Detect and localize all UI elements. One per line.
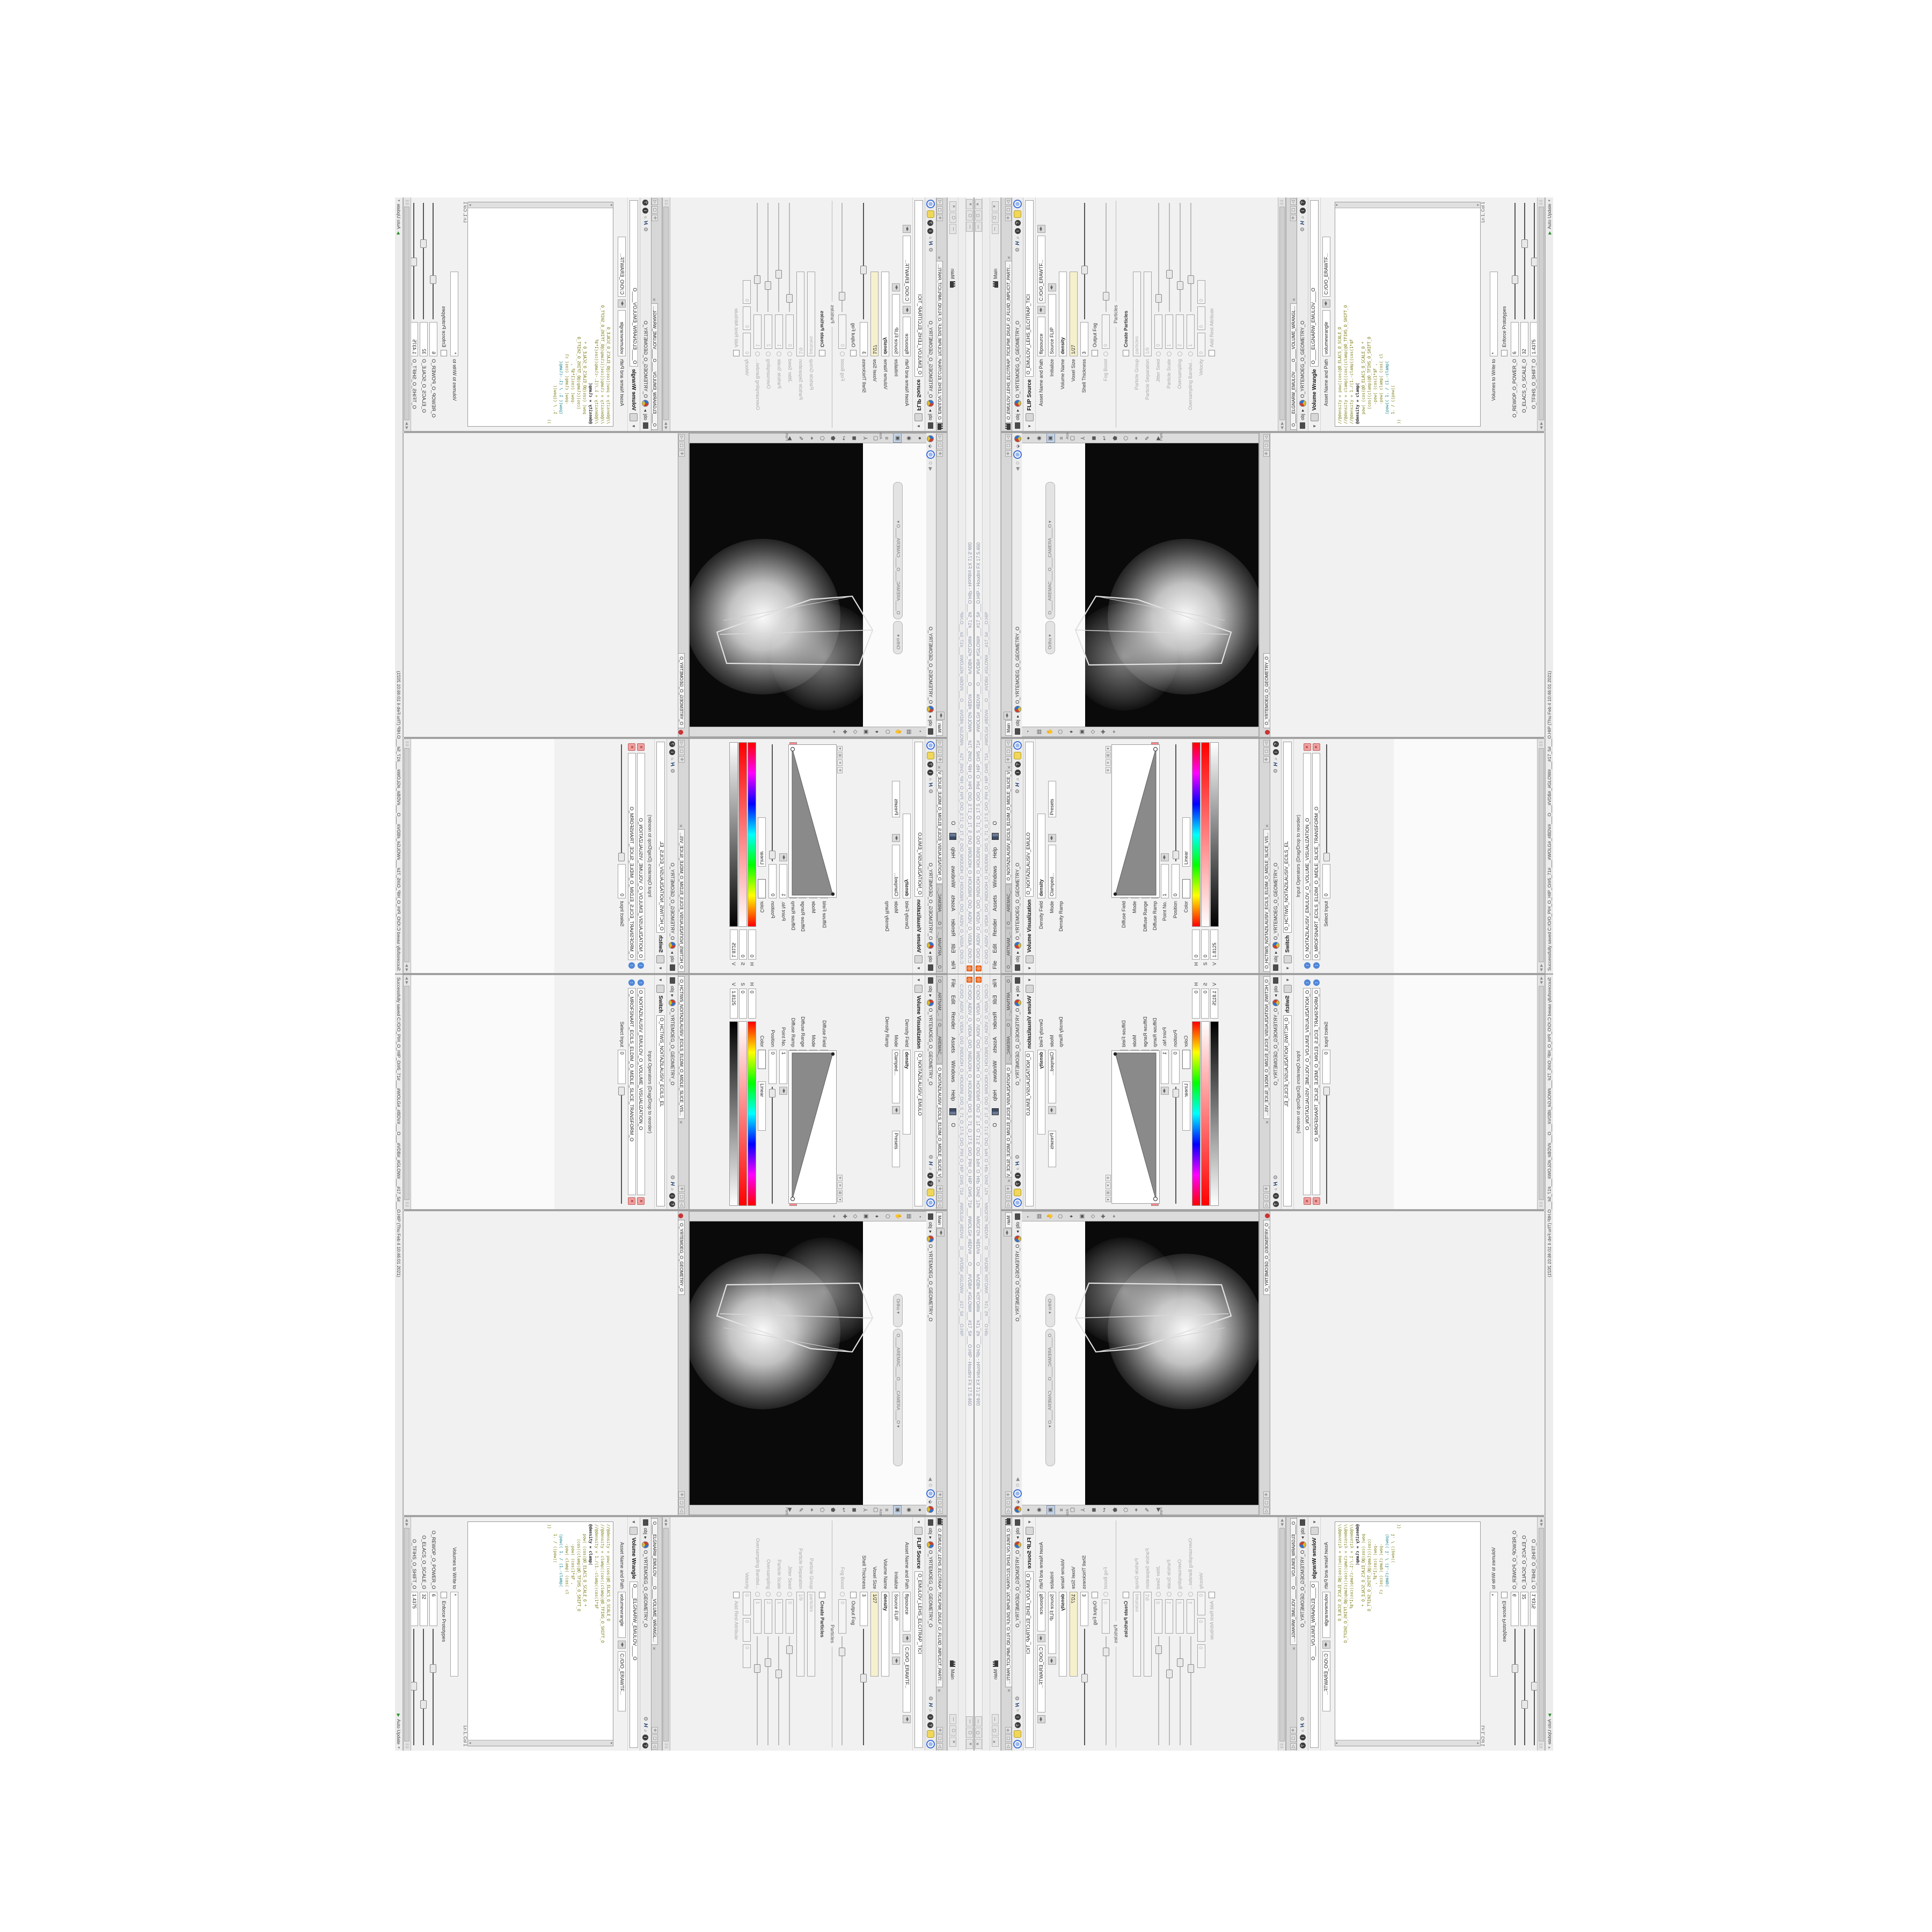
child-restore-button[interactable]: ▢ bbox=[949, 1725, 956, 1736]
param-field[interactable]: 0 bbox=[743, 280, 751, 304]
gear-icon[interactable]: ⚙ bbox=[1273, 769, 1279, 773]
param-slider[interactable] bbox=[787, 201, 794, 312]
tab-volume-wrangle[interactable]: O____ELGNARW_EMULOV____O____VOLUME_WRANG… bbox=[1290, 1518, 1297, 1645]
param-slider[interactable] bbox=[1176, 1636, 1183, 1747]
pane-split-icon[interactable]: ✛ bbox=[1005, 450, 1012, 457]
tab-close-icon[interactable]: ✕ bbox=[1265, 1119, 1270, 1125]
scroll-left-icon[interactable]: ◀ bbox=[405, 1519, 409, 1521]
param-field[interactable]: 1/9 bbox=[797, 1592, 805, 1677]
ortho-pill[interactable]: Ortho ▾ bbox=[1045, 621, 1055, 654]
viewport-left-tool-icon-4[interactable]: ♦ bbox=[1068, 728, 1075, 736]
param-field[interactable]: Source FLIP bbox=[892, 294, 901, 356]
flip-pane-scrollbar[interactable]: ◀▶ ⣿⣿ bbox=[663, 197, 670, 431]
houdini-help-icon[interactable]: H bbox=[1273, 1182, 1279, 1185]
collapse-caret-icon[interactable]: ▼ bbox=[917, 966, 921, 970]
collapse-caret-icon[interactable]: ▼ bbox=[917, 1520, 921, 1524]
param-field[interactable]: C:/O/O_ERAWTF... bbox=[903, 1645, 911, 1713]
slider-handle[interactable] bbox=[421, 239, 427, 248]
houdini-help-icon[interactable]: H bbox=[1273, 763, 1279, 766]
desktop-layout-icon[interactable] bbox=[949, 833, 956, 840]
density-mode-dropdown[interactable]: Clamped... bbox=[1048, 1050, 1056, 1103]
enforce-prototypes-checkbox[interactable] bbox=[1501, 1592, 1507, 1598]
tab-camera[interactable]: O____AREMAC_... bbox=[1005, 1020, 1012, 1064]
hue-strip[interactable] bbox=[748, 742, 757, 927]
spare-param-field[interactable]: 6 bbox=[430, 1592, 438, 1626]
viewport-right-tool-icon-11[interactable]: ✎ bbox=[796, 434, 804, 443]
viewport-left-tool-icon-7[interactable]: ✚ bbox=[840, 1212, 848, 1221]
viewport-right-tool-icon-10[interactable]: ⚭ bbox=[807, 1506, 815, 1514]
slider-handle[interactable] bbox=[755, 1664, 761, 1673]
flip-pane-scrollbar[interactable]: ◀▶ ⣿⣿ bbox=[1278, 197, 1285, 431]
slider-handle[interactable] bbox=[776, 1670, 782, 1678]
breadcrumb-root[interactable]: obj bbox=[670, 986, 675, 992]
tab-scroll-icon[interactable]: ◀▶ bbox=[1004, 712, 1012, 720]
breadcrumb-root[interactable]: obj bbox=[1300, 1528, 1305, 1534]
menu-edit[interactable]: Edit bbox=[992, 995, 998, 1004]
tab-main[interactable]: Main bbox=[1005, 1212, 1012, 1228]
pane-collapse-icon[interactable]: ◁ bbox=[1263, 1507, 1270, 1514]
axis-icon[interactable] bbox=[927, 210, 934, 218]
checkbox-output-fog[interactable] bbox=[850, 350, 857, 356]
checkbox-create-particles[interactable] bbox=[1123, 350, 1129, 356]
viewport-left-tool-icon-1[interactable]: ▤ bbox=[905, 728, 912, 736]
breadcrumb-root[interactable]: obj bbox=[643, 414, 648, 420]
pane-split-icon[interactable]: ✛ bbox=[936, 450, 943, 457]
pane-collapse-icon[interactable]: ◁ bbox=[936, 199, 943, 205]
point-no-input[interactable]: 1 bbox=[780, 1050, 788, 1084]
help-icon[interactable]: ? bbox=[1015, 1722, 1021, 1728]
close-button[interactable]: ✕ bbox=[975, 1739, 982, 1749]
menu-assets[interactable]: Assets bbox=[992, 895, 998, 911]
slider-handle[interactable] bbox=[1155, 1645, 1162, 1654]
pane-maximize-icon[interactable]: ▢ bbox=[1263, 442, 1270, 449]
spinner-icon[interactable]: ◀▶ bbox=[1037, 225, 1045, 233]
scroll-left-icon[interactable]: ◀ bbox=[1015, 467, 1021, 471]
tab-close-icon[interactable]: ✕ bbox=[678, 823, 683, 829]
reorder-handle-icon[interactable]: ↕ bbox=[1304, 962, 1311, 969]
menu-help[interactable]: Help bbox=[950, 847, 956, 859]
spare-param-field[interactable]: 32 bbox=[1520, 322, 1528, 356]
wrangle-name-field[interactable]: O____ELGNARW_EMULOV____O bbox=[630, 200, 638, 367]
target-icon[interactable] bbox=[1013, 1198, 1022, 1207]
axis-icon[interactable] bbox=[927, 752, 934, 759]
saturation-strip[interactable] bbox=[739, 1021, 748, 1206]
viewport-left-tool-icon-6[interactable]: ◇ bbox=[1089, 728, 1097, 736]
spare-param-slider[interactable] bbox=[1511, 201, 1518, 319]
tab-camera[interactable]: O____AREMAC_... bbox=[936, 884, 943, 928]
param-field[interactable]: 0 bbox=[1102, 314, 1110, 349]
breadcrumb-node[interactable]: O_YRTEMOEG_O_GEOMETRY_O bbox=[1015, 1550, 1020, 1628]
spare-param-slider[interactable] bbox=[421, 201, 428, 319]
viewport-right-tool-icon-0[interactable]: ● bbox=[916, 434, 923, 443]
code-vertical-scrollbar[interactable]: ▲▼ bbox=[468, 202, 613, 208]
revert-dot-icon[interactable] bbox=[777, 352, 782, 356]
collapse-caret-icon[interactable]: ▼ bbox=[1027, 424, 1032, 428]
gear-icon[interactable]: ⚙ bbox=[1015, 1154, 1021, 1159]
input-operator-field[interactable]: O_MROFSNART_ECILS_ELDIM_O_MIDLE_SLICE_TR… bbox=[1312, 988, 1320, 1195]
menu-edit[interactable]: Edit bbox=[950, 944, 956, 953]
pane-split-icon[interactable]: ✛ bbox=[936, 1491, 943, 1498]
spinner-icon[interactable]: ◀▶ bbox=[892, 1657, 901, 1665]
input-operator-field[interactable]: O_NOITAZILAUSIV_EMULOV_O_VOLUME_VISUALIZ… bbox=[637, 753, 645, 960]
help-icon[interactable]: ? bbox=[928, 1181, 934, 1187]
param-field[interactable]: 0 bbox=[1102, 1599, 1110, 1634]
revert-dot-icon[interactable] bbox=[788, 1592, 793, 1597]
select-input-slider[interactable] bbox=[1323, 1087, 1330, 1206]
breadcrumb-root[interactable]: obj bbox=[1015, 1222, 1020, 1228]
tab-visualization[interactable]: O_NOITAZILAUSIV_ECILS_ELDIM_O_MIDLE_SLIC… bbox=[936, 771, 943, 884]
param-field[interactable]: flipsource bbox=[903, 317, 911, 356]
position-input[interactable]: 0 bbox=[1172, 1050, 1180, 1084]
switch-pane-scrollbar[interactable]: ◀▶ ⣿⣿ bbox=[404, 975, 411, 1209]
pane-split-icon[interactable]: ✛ bbox=[936, 215, 943, 222]
pane-split-icon[interactable]: ✛ bbox=[936, 756, 943, 763]
viewport-right-tool-icon-6[interactable]: ◼ bbox=[1091, 434, 1098, 443]
input-operator-field[interactable]: O_MROFSNART_ECILS_ELDIM_O_MIDLE_SLICE_TR… bbox=[1312, 753, 1320, 960]
hue-strip[interactable] bbox=[1192, 1021, 1201, 1206]
v-input[interactable]: 1.8125 bbox=[1210, 989, 1218, 1019]
interpolation-dropdown[interactable]: Linear bbox=[1182, 1081, 1190, 1131]
help-icon[interactable]: ? bbox=[1300, 200, 1306, 206]
houdini-help-icon[interactable]: H bbox=[643, 221, 649, 225]
breadcrumb-root[interactable]: obj bbox=[1015, 986, 1020, 992]
viewport-right-tool-icon-1[interactable]: ◉ bbox=[905, 1506, 912, 1514]
info-icon[interactable]: i bbox=[1015, 1714, 1021, 1720]
spinner-icon[interactable]: ◀▶ bbox=[1161, 1087, 1169, 1095]
ortho-pill[interactable]: Ortho ▾ bbox=[1045, 1294, 1055, 1327]
param-field[interactable]: 0 bbox=[743, 1618, 751, 1642]
revert-dot-icon[interactable] bbox=[1156, 352, 1161, 356]
checkbox-add-rest-attribute[interactable] bbox=[733, 350, 740, 356]
breadcrumb-root[interactable]: obj bbox=[928, 1222, 933, 1228]
viewport-left-tool-icon-0[interactable]: ◔ bbox=[916, 728, 923, 736]
param-field[interactable]: 1/27 bbox=[1070, 272, 1078, 356]
scroll-right-icon[interactable]: ▶ bbox=[1539, 1523, 1543, 1526]
spare-param-slider[interactable] bbox=[421, 1629, 428, 1747]
viewport-right-tool-icon-2[interactable]: ▣ bbox=[893, 434, 902, 443]
param-slider[interactable] bbox=[1187, 201, 1194, 312]
pane-maximize-icon[interactable]: ▢ bbox=[1005, 1193, 1012, 1201]
pane-maximize-icon[interactable]: ▢ bbox=[1005, 1499, 1012, 1506]
pane-split-icon[interactable]: ✛ bbox=[678, 450, 685, 457]
tab-switch[interactable]: O_HCTIWS_NOITAZILAUSIV_ECILS_ELDIM_O_MID… bbox=[1263, 976, 1270, 1119]
menu-render[interactable]: Render bbox=[950, 1012, 956, 1029]
param-field[interactable]: Source FLIP bbox=[892, 1592, 901, 1654]
pane-split-icon[interactable]: ✛ bbox=[936, 1727, 943, 1734]
delete-input-icon[interactable]: ✕ bbox=[1304, 743, 1311, 751]
pane-maximize-icon[interactable]: ▢ bbox=[1005, 748, 1012, 755]
viewport-canvas[interactable]: Ortho ▾ O____AREMAC____O____CAMERA____O … bbox=[690, 443, 926, 727]
viewport-left-tool-icon-5[interactable]: ▣ bbox=[862, 728, 869, 736]
param-field[interactable]: 0 bbox=[839, 1599, 847, 1634]
select-input-field[interactable]: 0 bbox=[1322, 1050, 1330, 1084]
scroll-right-icon[interactable]: ▶ bbox=[405, 1523, 409, 1526]
wrangle-pane-scrollbar[interactable]: ◀▶ ⣿⣿ bbox=[1537, 1517, 1545, 1751]
collapse-caret-icon[interactable]: ▼ bbox=[1312, 1520, 1317, 1524]
h-input[interactable]: 0 bbox=[748, 989, 756, 1019]
pane-collapse-icon[interactable]: ◁ bbox=[1263, 740, 1270, 747]
s-input[interactable]: 0 bbox=[1201, 930, 1209, 960]
param-field[interactable]: 1 bbox=[754, 314, 762, 349]
viewport-left-tool-icon-3[interactable]: ⬡ bbox=[1057, 1212, 1065, 1221]
flip-name-field[interactable]: O_EMULOV_LEHS_ELCITRAP_TICI bbox=[914, 200, 923, 377]
spare-param-slider[interactable] bbox=[1531, 201, 1538, 319]
param-slider[interactable] bbox=[776, 201, 783, 312]
collapse-caret-icon[interactable]: ▼ bbox=[1285, 966, 1290, 970]
minimize-button[interactable]: — bbox=[967, 1716, 974, 1726]
slider-handle[interactable] bbox=[1521, 239, 1528, 248]
star-icon[interactable]: ✩ bbox=[1015, 1483, 1021, 1488]
search-icon[interactable]: ⌕ bbox=[670, 757, 676, 760]
param-slider[interactable] bbox=[787, 1636, 794, 1747]
menu-assets[interactable]: Assets bbox=[992, 1037, 998, 1053]
axis-icon[interactable] bbox=[1014, 1730, 1021, 1738]
viewport-right-tool-icon-7[interactable]: ↩ bbox=[839, 1506, 847, 1514]
pane-maximize-icon[interactable]: ▢ bbox=[652, 1735, 658, 1742]
input-operator-field[interactable]: O_NOITAZILAUSIV_EMULOV_O_VOLUME_VISUALIZ… bbox=[1303, 753, 1311, 960]
input-operator-field[interactable]: O_NOITAZILAUSIV_EMULOV_O_VOLUME_VISUALIZ… bbox=[1303, 988, 1311, 1195]
position-input[interactable]: 0 bbox=[769, 864, 777, 898]
scroll-left-icon[interactable]: ◀ bbox=[928, 1477, 934, 1481]
breadcrumb-root[interactable]: obj bbox=[928, 720, 933, 726]
target-icon[interactable] bbox=[1013, 1489, 1022, 1498]
asset-path-field[interactable]: C:/O/O_ERAWTF... bbox=[618, 1651, 626, 1711]
param-field[interactable]: 0 bbox=[743, 306, 751, 330]
revert-dot-icon[interactable] bbox=[840, 352, 845, 356]
param-field[interactable]: 1/9 bbox=[1144, 272, 1152, 356]
collapse-caret-icon[interactable]: ▼ bbox=[1285, 978, 1290, 982]
param-field[interactable]: 0 bbox=[743, 1592, 751, 1615]
param-field[interactable]: 0 bbox=[1197, 1592, 1205, 1615]
param-field[interactable]: 3 bbox=[860, 322, 868, 356]
param-field[interactable]: 0 bbox=[1197, 1618, 1205, 1642]
menu-windows[interactable]: Windows bbox=[950, 866, 956, 888]
param-slider[interactable] bbox=[839, 201, 846, 312]
pane-maximize-icon[interactable]: ▢ bbox=[936, 206, 943, 214]
param-field[interactable]: 0 bbox=[1197, 333, 1205, 356]
child-minimize-button[interactable]: — bbox=[992, 1714, 999, 1724]
switch-name-field[interactable]: O_HCTIWS_NOITAZILAUSIV_ECILS_EL bbox=[656, 742, 665, 933]
tab-main[interactable]: Main bbox=[936, 720, 943, 736]
pane-split-icon[interactable]: ✛ bbox=[1005, 1491, 1012, 1498]
menu-file[interactable]: File bbox=[992, 961, 998, 969]
minimize-button[interactable]: — bbox=[975, 222, 982, 232]
viewport-right-tool-icon-1[interactable]: ◉ bbox=[1036, 1506, 1043, 1514]
spare-param-field[interactable]: 1.4375 bbox=[411, 322, 419, 356]
delete-input-icon[interactable]: ✕ bbox=[638, 743, 645, 751]
delete-input-icon[interactable]: ✕ bbox=[1313, 1197, 1320, 1205]
revert-dot-icon[interactable] bbox=[1177, 352, 1182, 356]
tab-mantra[interactable]: O____ARTNAM_... bbox=[1005, 976, 1012, 1020]
breadcrumb-node[interactable]: O_YRTEMOEG_O_GEOMETRY_O bbox=[928, 863, 933, 940]
desktop-selector[interactable]: Main bbox=[993, 268, 998, 288]
pane-maximize-icon[interactable]: ▢ bbox=[936, 1193, 943, 1201]
info-icon[interactable]: i bbox=[643, 208, 649, 214]
menu-windows[interactable]: Windows bbox=[992, 866, 998, 888]
viz-name-field[interactable]: O_NOITAZILAUSIV_EMULO bbox=[914, 742, 923, 897]
param-field[interactable]: 2 bbox=[765, 1599, 773, 1634]
pane-split-icon[interactable]: ✛ bbox=[652, 1727, 658, 1734]
tab-close-icon[interactable]: ✕ bbox=[1007, 255, 1012, 261]
param-slider[interactable] bbox=[776, 1636, 783, 1747]
houdini-help-icon[interactable]: H bbox=[643, 1723, 649, 1727]
breadcrumb-root[interactable]: obj bbox=[1015, 414, 1020, 420]
viewport-canvas[interactable]: Ortho ▾ O____AREMAC____O____CAMERA____O … bbox=[1022, 1221, 1258, 1505]
viewport-left-tool-icon-3[interactable]: ⬡ bbox=[1057, 728, 1065, 736]
viewport-right-tool-icon-7[interactable]: ↩ bbox=[1101, 1506, 1109, 1514]
param-field[interactable]: density bbox=[882, 272, 890, 356]
param-field[interactable]: 0 bbox=[1197, 306, 1205, 330]
viewport-right-tool-icon-10[interactable]: ⚭ bbox=[807, 434, 815, 443]
search-icon[interactable]: ⌕ bbox=[670, 1188, 676, 1191]
menu-file[interactable]: File bbox=[950, 961, 956, 969]
h-input[interactable]: 0 bbox=[1192, 930, 1200, 960]
slider-handle[interactable] bbox=[1512, 275, 1518, 284]
breadcrumb-node[interactable]: O_YRTEMOEG_O_GEOMETRY_O bbox=[1015, 321, 1020, 398]
flip-name-field[interactable]: O_EMULOV_LEHS_ELCITRAP_TICI bbox=[914, 1571, 923, 1748]
slider-handle[interactable] bbox=[430, 1664, 437, 1673]
search-icon[interactable]: ⌕ bbox=[643, 1729, 649, 1732]
viewport-right-tool-icon-7[interactable]: ↩ bbox=[839, 434, 847, 443]
spare-param-slider[interactable] bbox=[1531, 1629, 1538, 1747]
breadcrumb-root[interactable]: obj bbox=[928, 986, 933, 992]
close-button[interactable]: ✕ bbox=[967, 1739, 974, 1749]
spinner-icon[interactable]: ◀▶ bbox=[1048, 1657, 1056, 1665]
viewport-right-tool-icon-2[interactable]: ▣ bbox=[1046, 1505, 1055, 1515]
param-field[interactable]: 2 bbox=[1176, 314, 1184, 349]
slider-handle[interactable] bbox=[787, 294, 793, 303]
param-field[interactable]: Source FLIP bbox=[1048, 294, 1056, 356]
tab-close-icon[interactable]: ✕ bbox=[936, 1178, 941, 1184]
param-slider[interactable] bbox=[1176, 201, 1183, 312]
breadcrumb-node[interactable]: O_YRTEMOEG_O_GEOMETRY_O bbox=[1273, 863, 1278, 940]
viewport-right-tool-icon-6[interactable]: ◼ bbox=[850, 434, 858, 443]
pane-split-icon[interactable]: ✛ bbox=[1005, 756, 1012, 763]
param-field[interactable]: 1 bbox=[775, 1599, 784, 1634]
density-field-input[interactable]: density bbox=[903, 1050, 911, 1135]
revert-dot-icon[interactable] bbox=[766, 352, 771, 356]
reorder-handle-icon[interactable]: ↕ bbox=[1313, 979, 1320, 986]
param-field[interactable]: flipsource bbox=[903, 1592, 911, 1631]
scroll-left-icon[interactable]: ◀ bbox=[1539, 977, 1543, 979]
param-slider[interactable] bbox=[1155, 201, 1162, 312]
camera-pill[interactable]: O____AREMAC____O____CAMERA____O ▾ bbox=[1045, 1329, 1055, 1466]
ramp-del-icon[interactable]: ✕ bbox=[1106, 759, 1111, 766]
tab-volume-wrangle[interactable]: O____ELGNARW_EMULOV____O____VOLUME_WRANG… bbox=[652, 1518, 658, 1645]
camera-pill[interactable]: O____AREMAC____O____CAMERA____O ▾ bbox=[893, 482, 903, 619]
checkbox-add-rest-attribute[interactable] bbox=[1209, 350, 1215, 356]
select-input-field[interactable]: 0 bbox=[618, 864, 626, 898]
viewport-right-tool-icon-9[interactable]: ⬠ bbox=[818, 434, 825, 443]
viewport-left-tool-icon-7[interactable]: ✚ bbox=[1100, 1212, 1108, 1221]
point-no-input[interactable]: 1 bbox=[780, 864, 788, 898]
scroll-right-icon[interactable]: ▶ bbox=[405, 981, 409, 984]
viewport-right-tool-icon-2[interactable]: ▣ bbox=[893, 1505, 902, 1515]
input-operator-field[interactable]: O_MROFSNART_ECILS_ELDIM_O_MIDLE_SLICE_TR… bbox=[628, 753, 636, 960]
pane-maximize-icon[interactable]: ▢ bbox=[936, 1499, 943, 1506]
vex-code-editor[interactable]: //@density = pow((cos(@O_ELACS_O_SCALE_O… bbox=[1335, 1521, 1481, 1746]
ramp-menu-icon[interactable]: ▾ bbox=[837, 746, 843, 751]
wrangle-name-field[interactable]: O____ELGNARW_EMULOV____O bbox=[1310, 1582, 1319, 1748]
tab-network-geometry[interactable]: O_YRTEMOEG_O_GEOMETRY_O bbox=[1263, 1220, 1270, 1295]
pane-collapse-icon[interactable]: ◁ bbox=[936, 434, 943, 441]
viewport-right-tool-icon-5[interactable]: ⅄ bbox=[861, 434, 868, 443]
spinner-icon[interactable]: ◀▶ bbox=[1037, 306, 1045, 314]
tab-visualization[interactable]: O_NOITAZILAUSIV_ECILS_ELDIM_O_MIDLE_SLIC… bbox=[936, 1064, 943, 1177]
breadcrumb-root[interactable]: obj bbox=[1273, 956, 1278, 962]
pane-collapse-icon[interactable]: ◁ bbox=[936, 1202, 943, 1208]
slider-handle[interactable] bbox=[1081, 1674, 1088, 1682]
slider-handle[interactable] bbox=[421, 1700, 427, 1709]
param-slider[interactable] bbox=[755, 1636, 762, 1747]
position-slider[interactable] bbox=[1172, 742, 1179, 861]
info-icon[interactable]: i bbox=[928, 770, 934, 775]
info-icon[interactable]: i bbox=[928, 1714, 934, 1720]
asset-name-field[interactable]: volumewrangle bbox=[618, 1592, 626, 1638]
checkbox-output-fog[interactable] bbox=[850, 1592, 857, 1598]
slider-handle[interactable] bbox=[1188, 275, 1194, 284]
param-field[interactable]: C:/O/O_ERAWTF... bbox=[903, 236, 911, 303]
slider-handle[interactable] bbox=[1155, 294, 1162, 303]
tab-camera[interactable]: O____AREMAC_... bbox=[1005, 884, 1012, 928]
star-icon[interactable]: ✩ bbox=[928, 461, 934, 465]
viewport-left-tool-icon-4[interactable]: ♦ bbox=[873, 728, 880, 736]
update-mode-selector[interactable]: ▶ Auto Update ▾ bbox=[1547, 1714, 1552, 1748]
tab-switch[interactable]: O_HCTIWS_NOITAZILAUSIV_ECILS_ELDIM_O_MID… bbox=[678, 976, 685, 1119]
target-icon[interactable] bbox=[926, 741, 935, 750]
slider-handle[interactable] bbox=[755, 275, 761, 284]
spare-param-field[interactable]: 6 bbox=[1511, 1592, 1519, 1626]
houdini-help-icon[interactable]: H bbox=[1015, 783, 1021, 787]
slider-handle[interactable] bbox=[787, 1645, 793, 1654]
switch-name-field[interactable]: O_HCTIWS_NOITAZILAUSIV_ECILS_EL bbox=[1283, 742, 1292, 933]
tab-network-geometry[interactable]: O_YRTEMOEG_O_GEOMETRY_O bbox=[1263, 653, 1270, 728]
help-icon[interactable]: ? bbox=[1273, 1201, 1279, 1207]
param-slider[interactable] bbox=[1081, 1629, 1088, 1747]
scroll-left-icon[interactable]: ◀ bbox=[1280, 427, 1284, 429]
ramp-expand-icon[interactable]: ⊞ bbox=[1106, 1190, 1111, 1196]
delete-input-icon[interactable]: ✕ bbox=[1304, 1197, 1311, 1205]
pane-split-icon[interactable]: ✛ bbox=[678, 1185, 685, 1192]
spinner-icon[interactable]: ◀▶ bbox=[1322, 299, 1330, 308]
hue-strip[interactable] bbox=[1192, 742, 1201, 927]
spare-param-field[interactable]: 32 bbox=[420, 322, 428, 356]
revert-dot-icon[interactable] bbox=[1167, 1592, 1172, 1597]
slider-handle[interactable] bbox=[1188, 1664, 1194, 1673]
info-icon[interactable]: i bbox=[1015, 228, 1021, 234]
pane-collapse-icon[interactable]: ◁ bbox=[936, 1743, 943, 1750]
wrangle-name-field[interactable]: O____ELGNARW_EMULOV____O bbox=[1310, 200, 1319, 367]
viewport-right-tool-icon-3[interactable]: ≡ bbox=[882, 434, 890, 443]
minimize-button[interactable]: — bbox=[975, 1716, 982, 1726]
desktop-selector[interactable]: Main bbox=[993, 1660, 998, 1680]
target-icon[interactable] bbox=[926, 1198, 935, 1207]
point-no-input[interactable]: 1 bbox=[1161, 1050, 1169, 1084]
collapse-caret-icon[interactable]: ▼ bbox=[632, 424, 636, 428]
s-input[interactable]: 0 bbox=[739, 989, 747, 1019]
viewport-left-tool-icon-0[interactable]: ◔ bbox=[1025, 728, 1033, 736]
value-strip[interactable] bbox=[1210, 742, 1219, 927]
collapse-caret-icon[interactable]: ▼ bbox=[658, 966, 663, 970]
tab-close-icon[interactable]: ✕ bbox=[1007, 1688, 1012, 1694]
collapse-caret-icon[interactable]: ▼ bbox=[632, 1520, 636, 1524]
viewport-right-tool-icon-8[interactable]: ⬟ bbox=[1112, 1506, 1119, 1514]
slider-handle[interactable] bbox=[861, 1674, 867, 1682]
desktop-selector[interactable]: Main bbox=[950, 268, 956, 288]
scroll-left-icon[interactable]: ◀ bbox=[405, 969, 409, 971]
spinner-icon[interactable]: ◀▶ bbox=[892, 283, 901, 291]
pane-collapse-icon[interactable]: ◁ bbox=[936, 740, 943, 747]
